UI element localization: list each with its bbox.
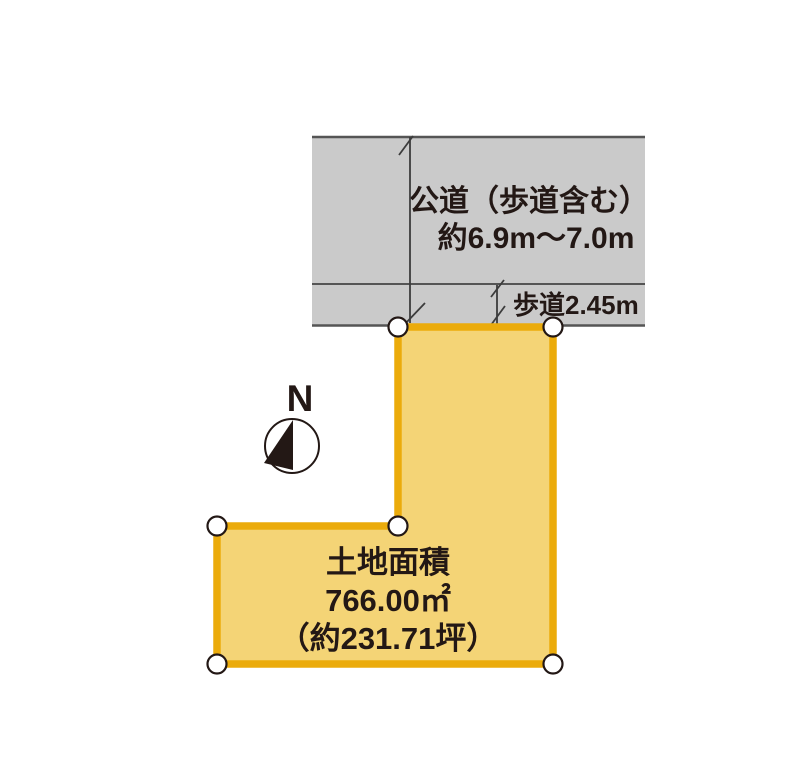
vertex-marker — [544, 318, 563, 337]
road-width-label: 約6.9m〜7.0m — [438, 222, 635, 255]
compass: N — [264, 378, 319, 473]
public-road: 公道（歩道含む） 約6.9m〜7.0m 歩道2.45m — [312, 136, 649, 326]
vertex-marker — [208, 517, 227, 536]
north-label: N — [287, 378, 314, 419]
vertex-marker — [544, 655, 563, 674]
land-plot-diagram: 公道（歩道含む） 約6.9m〜7.0m 歩道2.45m N 土地面積 766.0… — [0, 0, 800, 780]
vertex-marker — [389, 318, 408, 337]
parcel-title: 土地面積 — [326, 545, 450, 580]
vertex-marker — [208, 655, 227, 674]
parcel-area-tsubo: （約231.71坪） — [279, 621, 498, 656]
site-plan-svg: 公道（歩道含む） 約6.9m〜7.0m 歩道2.45m N 土地面積 766.0… — [0, 0, 800, 780]
sidewalk-width-label: 歩道2.45m — [513, 290, 639, 320]
land-parcel-group: 土地面積 766.00㎡ （約231.71坪） — [217, 327, 553, 664]
vertex-marker — [389, 517, 408, 536]
parcel-area-sqm: 766.00㎡ — [325, 583, 451, 618]
road-name-label: 公道（歩道含む） — [409, 184, 649, 218]
